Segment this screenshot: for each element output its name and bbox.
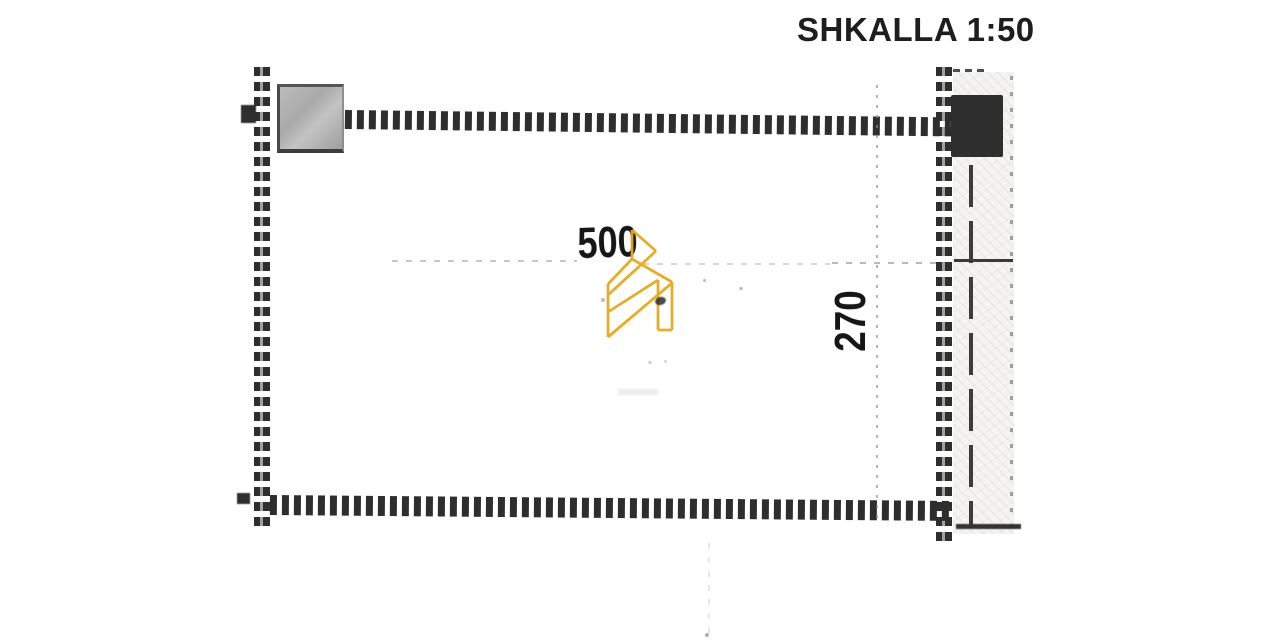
speck-artifact: [601, 298, 605, 302]
scale-label: SHKALLA 1:50: [797, 11, 1037, 51]
wall-top: [345, 110, 951, 136]
guide-line-horizontal-3: [832, 262, 940, 264]
wall-right: [936, 67, 952, 541]
wall-tick-left-bottom: [237, 493, 250, 504]
gray-column-block: [277, 84, 344, 153]
guide-line-horizontal-1: [392, 260, 577, 262]
band-middle-line: [954, 259, 1013, 262]
speck-artifact: [739, 287, 743, 290]
speck-artifact: [648, 361, 652, 364]
ghost-line-artifact: [708, 543, 710, 638]
band-bottom-line: [956, 524, 1021, 529]
band-dash-dot-line: [969, 165, 973, 525]
speck-artifact: [703, 279, 706, 282]
smudge-artifact: [618, 389, 658, 395]
dimension-label-height: 270: [813, 289, 889, 353]
wall-bottom: [270, 495, 952, 521]
dark-column-block: [951, 95, 1003, 157]
scanned-floor-plan-page: { "header": { "scale_label": "SHKALLA 1:…: [0, 0, 1280, 643]
speck-artifact: [664, 360, 667, 363]
wall-tick-left-top: [241, 105, 256, 123]
band-right-edge-line: [1010, 76, 1013, 534]
gold-ribbon-building-logo-icon: [596, 222, 682, 348]
wall-left: [254, 67, 270, 531]
